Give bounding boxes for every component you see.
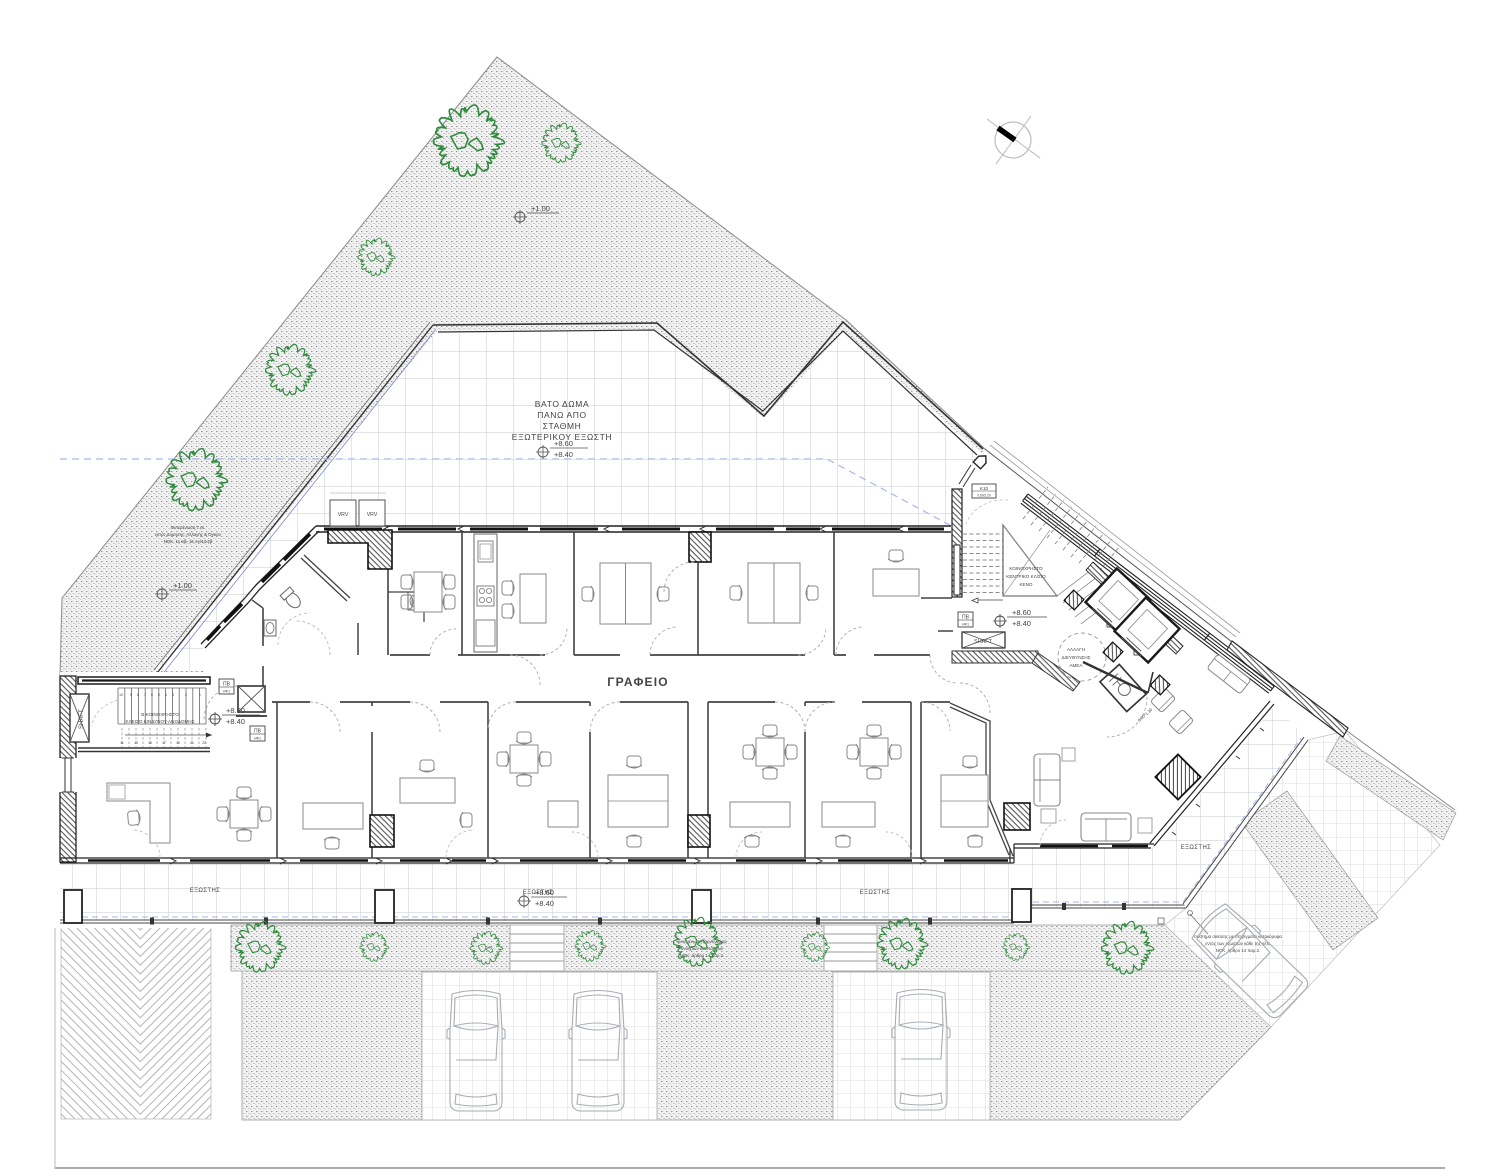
svg-text:15: 15 xyxy=(148,741,152,745)
svg-text:ΣΤΑΘΜΗ: ΣΤΑΘΜΗ xyxy=(543,421,582,431)
svg-text:VRV: VRV xyxy=(367,512,378,518)
svg-text:ΠΑΝΩ ΑΠΟ: ΠΑΝΩ ΑΠΟ xyxy=(537,410,586,420)
svg-text:13: 13 xyxy=(134,741,138,745)
svg-text:11: 11 xyxy=(120,741,124,745)
svg-text:+1.00: +1.00 xyxy=(531,204,550,213)
svg-text:+8.40: +8.40 xyxy=(226,717,245,726)
svg-text:VRV: VRV xyxy=(338,512,349,518)
svg-text:ΕΞΩΣΤΗΣ: ΕΞΩΣΤΗΣ xyxy=(860,890,891,896)
svg-text:+1.00: +1.00 xyxy=(173,581,192,590)
svg-text:ΓΡΑΦΕΙΟ: ΓΡΑΦΕΙΟ xyxy=(607,675,669,689)
svg-text:ΕΞΩΣΤΗΣ: ΕΞΩΣΤΗΣ xyxy=(1181,845,1212,851)
svg-text:ΗΦ1: ΗΦ1 xyxy=(962,623,969,627)
svg-text:Β ΚΟΙΝΟΧΡΗΣΤΟ: Β ΚΟΙΝΟΧΡΗΣΤΟ xyxy=(141,712,179,717)
svg-text:+8.60: +8.60 xyxy=(1012,608,1031,617)
svg-text:9: 9 xyxy=(130,693,132,697)
svg-text:2: 2 xyxy=(185,693,187,697)
svg-text:ΗΦ1: ΗΦ1 xyxy=(223,690,230,694)
svg-text:εκτός Δόμησης, Αλλαγής & Όγκου: εκτός Δόμησης, Αλλαγής & Όγκου xyxy=(155,532,221,537)
svg-text:+8.40: +8.40 xyxy=(554,450,573,459)
svg-text:ΠΒ: ΠΒ xyxy=(254,729,262,735)
svg-text:+8.60: +8.60 xyxy=(226,706,245,715)
svg-text:ΗΦ1: ΗΦ1 xyxy=(254,737,261,741)
svg-text:SHAFT: SHAFT xyxy=(974,639,993,645)
svg-text:ΚΛΕΙΣΟ ΚΙΝΔΥΝΟΥ-ΑΝΟΔΟΜΗΣ: ΚΛΕΙΣΟ ΚΙΝΔΥΝΟΥ-ΑΝΟΔΟΜΗΣ xyxy=(126,719,195,724)
svg-text:+8.60: +8.60 xyxy=(554,439,573,448)
svg-text:φυτεμένωση ζαρντινιέρας: φυτεμένωση ζαρντινιέρας xyxy=(677,939,726,944)
svg-text:17: 17 xyxy=(162,741,166,745)
svg-text:ΔΙΕΥΘΥΝΣΗΣ: ΔΙΕΥΘΥΝΣΗΣ xyxy=(1061,655,1090,660)
svg-text:4: 4 xyxy=(165,693,167,697)
svg-text:8: 8 xyxy=(137,693,139,697)
svg-text:19: 19 xyxy=(176,741,180,745)
svg-text:ΠΒ: ΠΒ xyxy=(223,682,231,688)
svg-text:+8.40: +8.40 xyxy=(1012,619,1031,628)
svg-text:Φυτεμένωση 7 εκ.: Φυτεμένωση 7 εκ. xyxy=(170,525,205,530)
svg-text:22: 22 xyxy=(202,741,206,745)
svg-text:21: 21 xyxy=(190,741,194,745)
svg-text:ΚΕΝΤΡΙΚΟ ΚΛ/ΣΙΟ: ΚΕΝΤΡΙΚΟ ΚΛ/ΣΙΟ xyxy=(1006,574,1046,579)
svg-text:3: 3 xyxy=(172,693,174,697)
svg-text:7: 7 xyxy=(144,693,146,697)
svg-text:σύστημα σκίασης με στηρίγματα: σύστημα σκίασης με στηρίγματα κατακόρυφα xyxy=(1194,934,1282,939)
svg-text:10: 10 xyxy=(119,693,123,697)
svg-text:ΕΞΩΣΤΗΣ: ΕΞΩΣΤΗΣ xyxy=(190,888,221,894)
svg-text:ΝΟΚ. 11.6β, 12.Αγ/13.2β: ΝΟΚ. 11.6β, 12.Αγ/13.2β xyxy=(164,539,213,544)
svg-text:+8.60: +8.60 xyxy=(535,888,554,897)
svg-text:6: 6 xyxy=(151,693,153,697)
svg-text:ΠΒ: ΠΒ xyxy=(962,615,970,621)
svg-text:ανοιχτών διαστάσεων: ανοιχτών διαστάσεων xyxy=(681,946,724,951)
svg-text:Κ10: Κ10 xyxy=(980,486,989,491)
svg-text:ΒΑΤΟ ΔΩΜΑ: ΒΑΤΟ ΔΩΜΑ xyxy=(535,399,589,409)
svg-text:SHAFT: SHAFT xyxy=(79,709,85,729)
svg-text:ΑΛΛΑΓΗ: ΑΛΛΑΓΗ xyxy=(1067,647,1085,652)
svg-text:0.60/2.20: 0.60/2.20 xyxy=(977,494,991,498)
svg-text:ΚΕΝΟ: ΚΕΝΟ xyxy=(1019,582,1032,587)
svg-text:ΚΟΙΝΟΧΡΗΣΤΟ: ΚΟΙΝΟΧΡΗΣΤΟ xyxy=(1009,566,1043,571)
svg-text:1: 1 xyxy=(199,693,201,697)
svg-text:5: 5 xyxy=(158,693,160,697)
svg-text:ΑΜΕΑ: ΑΜΕΑ xyxy=(1069,663,1083,668)
svg-text:ΝΟΚ. άρθρο 14 παρ.2.: ΝΟΚ. άρθρο 14 παρ.2. xyxy=(680,953,725,958)
svg-text:+8.40: +8.40 xyxy=(535,899,554,908)
